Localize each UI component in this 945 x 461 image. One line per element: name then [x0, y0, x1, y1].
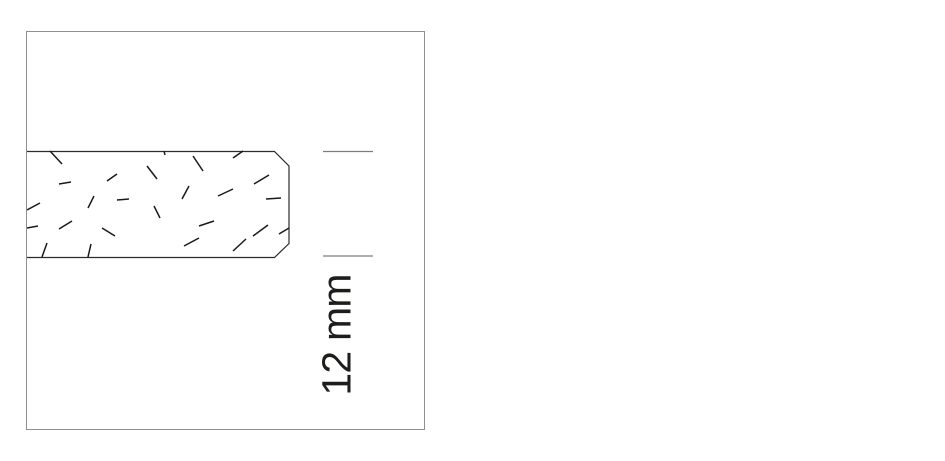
dimension-label: 12 mm — [317, 274, 358, 395]
cross-section-svg — [27, 32, 424, 429]
technical-drawing: 12 mm — [0, 0, 945, 461]
page: { "page": { "background": "#ffffff" }, "… — [0, 0, 945, 461]
drawing-frame: 12 mm — [26, 31, 425, 430]
board-outline — [27, 152, 289, 258]
hatch-mark — [266, 198, 281, 199]
dimension-extension-lines — [323, 152, 373, 257]
hatch-mark — [164, 151, 165, 155]
hatch-mark — [117, 199, 129, 200]
